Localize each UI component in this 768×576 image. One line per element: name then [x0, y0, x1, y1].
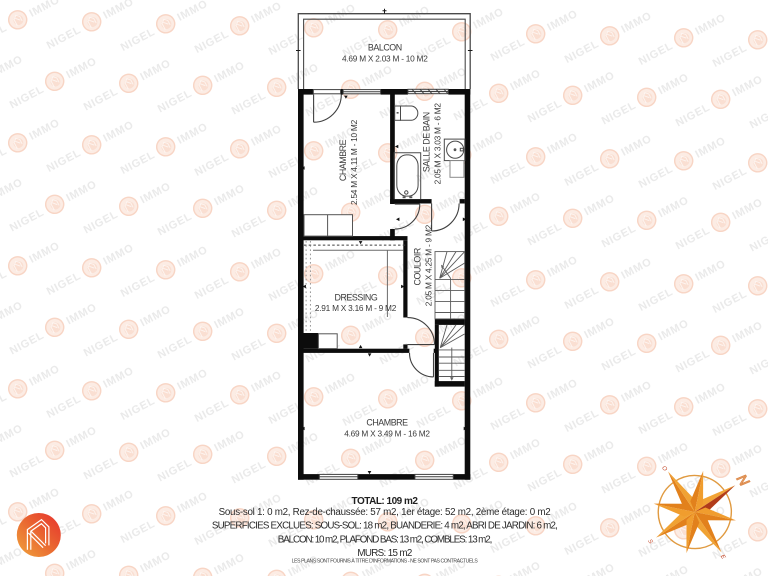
svg-text:COULOIR: COULOIR — [412, 248, 422, 285]
svg-text:2.05 M X 4.25 M - 9 M2: 2.05 M X 4.25 M - 9 M2 — [424, 224, 434, 306]
svg-text:2.05 M X 3.03 M - 6 M2: 2.05 M X 3.03 M - 6 M2 — [433, 103, 443, 185]
svg-text:BALCON: BALCON — [368, 43, 402, 53]
svg-text:4.69 M X 2.03 M - 10 M2: 4.69 M X 2.03 M - 10 M2 — [342, 53, 428, 63]
svg-text:4.69 M X 3.49 M - 16 M2: 4.69 M X 3.49 M - 16 M2 — [344, 429, 430, 439]
svg-text:2.54 M X 4.11 M - 10 M2: 2.54 M X 4.11 M - 10 M2 — [349, 119, 359, 205]
svg-text:SUPERFICIES EXCLUES: SOUS-SOL:: SUPERFICIES EXCLUES: SOUS-SOL: 18 m2, BU… — [212, 521, 557, 532]
svg-text:DRESSING: DRESSING — [335, 293, 378, 303]
svg-text:Sous-sol 1: 0 m2, Rez-de-chaus: Sous-sol 1: 0 m2, Rez-de-chaussée: 57 m2… — [219, 507, 551, 518]
svg-text:LES PLANS SONT FOURNIS À TITRE: LES PLANS SONT FOURNIS À TITRE D'INFORMA… — [292, 558, 479, 565]
svg-text:N: N — [734, 471, 753, 489]
svg-text:CHAMBRE: CHAMBRE — [338, 139, 348, 181]
svg-text:CHAMBRE: CHAMBRE — [366, 418, 408, 428]
svg-text:2.91 M X 3.16 M - 9 M2: 2.91 M X 3.16 M - 9 M2 — [315, 303, 397, 313]
svg-text:TOTAL: 109 m2: TOTAL: 109 m2 — [352, 496, 419, 507]
svg-text:BALCON: 10 m2, PLAFOND BAS: 13: BALCON: 10 m2, PLAFOND BAS: 13 m2, COMBL… — [278, 534, 492, 545]
svg-text:SALLE DE BAIN: SALLE DE BAIN — [421, 112, 431, 172]
